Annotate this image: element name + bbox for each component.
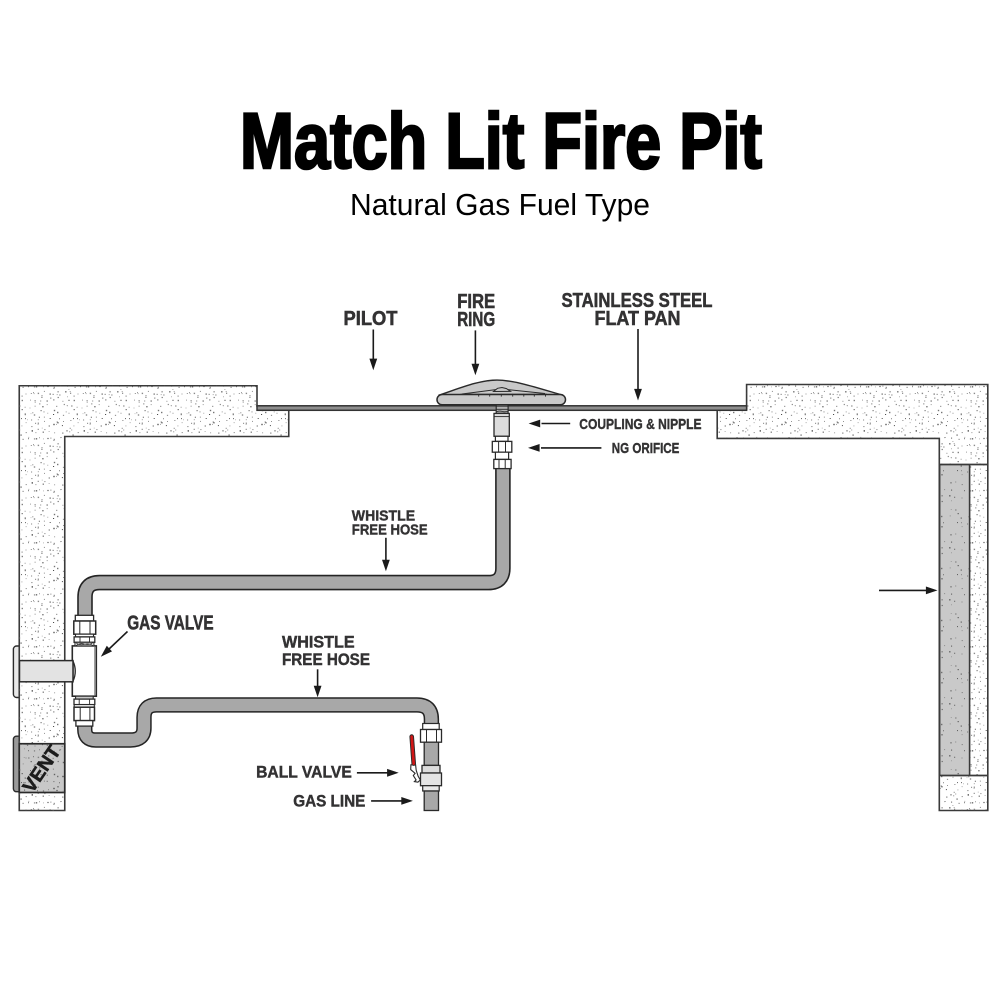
svg-text:COUPLING & NIPPLE: COUPLING & NIPPLE — [579, 416, 701, 433]
svg-text:FREE HOSE: FREE HOSE — [352, 521, 428, 538]
svg-text:RING: RING — [457, 309, 495, 331]
svg-text:Natural Gas Fuel Type: Natural Gas Fuel Type — [350, 188, 650, 222]
svg-text:PILOT: PILOT — [344, 308, 398, 330]
svg-text:WHISTLE: WHISTLE — [282, 632, 355, 651]
svg-text:Match Lit Fire Pit: Match Lit Fire Pit — [240, 96, 762, 185]
svg-text:GAS LINE: GAS LINE — [293, 792, 365, 811]
svg-text:NG ORIFICE: NG ORIFICE — [612, 440, 680, 457]
svg-text:FREE HOSE: FREE HOSE — [282, 650, 370, 669]
svg-text:BALL VALVE: BALL VALVE — [256, 763, 352, 782]
svg-text:FLAT PAN: FLAT PAN — [595, 308, 681, 330]
svg-text:GAS VALVE: GAS VALVE — [127, 613, 213, 635]
